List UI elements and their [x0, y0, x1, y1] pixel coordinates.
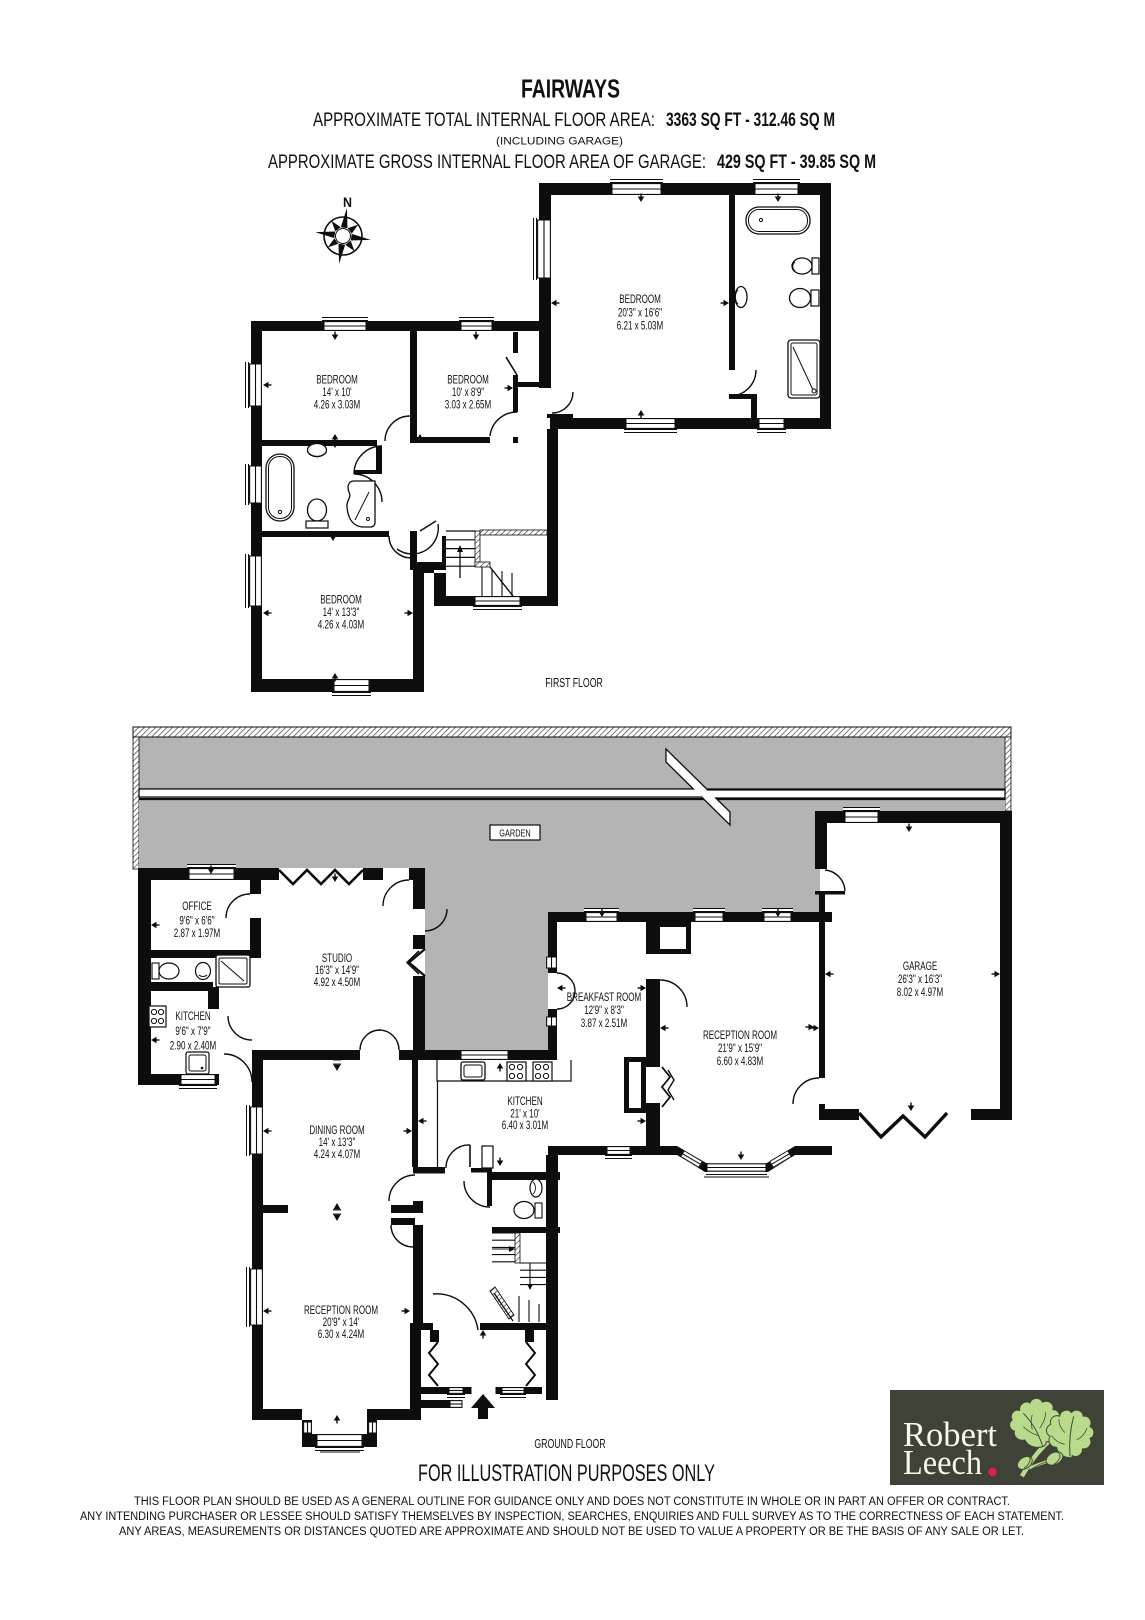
svg-text:4.26 x 4.03M: 4.26 x 4.03M: [318, 619, 364, 632]
svg-text:20'3" x 16'6": 20'3" x 16'6": [618, 307, 662, 320]
svg-text:2.90 x 2.40M: 2.90 x 2.40M: [170, 1040, 216, 1053]
svg-text:16'3" x 14'9": 16'3" x 14'9": [315, 965, 359, 978]
svg-text:4.24 x 4.07M: 4.24 x 4.07M: [314, 1149, 360, 1162]
svg-text:GARDEN: GARDEN: [499, 827, 530, 839]
svg-text:21'9" x 15'9": 21'9" x 15'9": [718, 1043, 762, 1056]
svg-text:(INCLUDING GARAGE): (INCLUDING GARAGE): [496, 136, 623, 148]
svg-text:429 SQ FT - 39.85 SQ M: 429 SQ FT - 39.85 SQ M: [717, 152, 876, 173]
svg-text:10' x 8'9": 10' x 8'9": [452, 387, 485, 400]
svg-text:RECEPTION ROOM: RECEPTION ROOM: [304, 1305, 378, 1318]
svg-text:8.02 x 4.97M: 8.02 x 4.97M: [897, 987, 943, 1000]
svg-text:9'6" x 6'6": 9'6" x 6'6": [179, 915, 215, 928]
svg-text:9'6" x 7'9": 9'6" x 7'9": [175, 1026, 211, 1039]
svg-text:6.21 x 5.03M: 6.21 x 5.03M: [617, 320, 663, 333]
svg-text:ANY AREAS, MEASUREMENTS OR DIS: ANY AREAS, MEASUREMENTS OR DISTANCES QUO…: [119, 1524, 1024, 1538]
svg-text:Leech: Leech: [903, 1443, 982, 1482]
svg-text:4.26 x 3.03M: 4.26 x 3.03M: [314, 399, 360, 412]
svg-text:ANY INTENDING PURCHASER OR LES: ANY INTENDING PURCHASER OR LESSEE SHOULD…: [80, 1509, 1064, 1523]
svg-text:6.30 x 4.24M: 6.30 x 4.24M: [318, 1329, 364, 1342]
svg-text:APPROXIMATE GROSS INTERNAL FLO: APPROXIMATE GROSS INTERNAL FLOOR AREA OF…: [268, 152, 706, 173]
svg-text:FOR ILLUSTRATION PURPOSES ONLY: FOR ILLUSTRATION PURPOSES ONLY: [418, 1460, 715, 1487]
svg-text:OFFICE: OFFICE: [182, 901, 212, 914]
svg-text:BREAKFAST ROOM: BREAKFAST ROOM: [567, 992, 641, 1005]
svg-text:14' x 13'3": 14' x 13'3": [323, 607, 360, 620]
svg-text:3363 SQ FT - 312.46 SQ M: 3363 SQ FT - 312.46 SQ M: [666, 110, 835, 131]
svg-text:6.60 x 4.83M: 6.60 x 4.83M: [717, 1056, 763, 1069]
svg-text:14' x 13'3": 14' x 13'3": [319, 1137, 356, 1150]
svg-text:GROUND FLOOR: GROUND FLOOR: [534, 1438, 605, 1452]
svg-text:N: N: [343, 194, 352, 210]
svg-text:BEDROOM: BEDROOM: [619, 294, 661, 307]
svg-text:6.40 x 3.01M: 6.40 x 3.01M: [502, 1120, 548, 1133]
svg-text:BEDROOM: BEDROOM: [316, 374, 358, 387]
svg-text:12'9" x 8'3": 12'9" x 8'3": [584, 1005, 624, 1018]
svg-text:DINING ROOM: DINING ROOM: [309, 1125, 364, 1138]
svg-text:BEDROOM: BEDROOM: [447, 374, 489, 387]
svg-text:FAIRWAYS: FAIRWAYS: [521, 74, 620, 104]
svg-text:3.03 x 2.65M: 3.03 x 2.65M: [445, 399, 491, 412]
svg-text:BEDROOM: BEDROOM: [320, 594, 362, 607]
svg-text:STUDIO: STUDIO: [322, 953, 353, 966]
svg-text:14' x 10': 14' x 10': [322, 387, 352, 400]
svg-text:3.87 x 2.51M: 3.87 x 2.51M: [581, 1018, 627, 1031]
svg-text:26'3" x 16'3": 26'3" x 16'3": [898, 974, 942, 987]
svg-text:KITCHEN: KITCHEN: [175, 1011, 210, 1024]
svg-text:2.87 x 1.97M: 2.87 x 1.97M: [174, 928, 220, 941]
svg-text:RECEPTION ROOM: RECEPTION ROOM: [703, 1030, 777, 1043]
svg-text:GARAGE: GARAGE: [903, 961, 938, 974]
svg-text:20'9" x 14': 20'9" x 14': [323, 1317, 360, 1330]
svg-text:FIRST FLOOR: FIRST FLOOR: [545, 677, 603, 691]
svg-text:KITCHEN: KITCHEN: [507, 1096, 542, 1109]
svg-text:APPROXIMATE TOTAL INTERNAL FLO: APPROXIMATE TOTAL INTERNAL FLOOR AREA:: [313, 110, 655, 131]
svg-text:4.92 x 4.50M: 4.92 x 4.50M: [314, 977, 360, 990]
svg-text:THIS FLOOR PLAN SHOULD BE USED: THIS FLOOR PLAN SHOULD BE USED AS A GENE…: [134, 1494, 1010, 1508]
